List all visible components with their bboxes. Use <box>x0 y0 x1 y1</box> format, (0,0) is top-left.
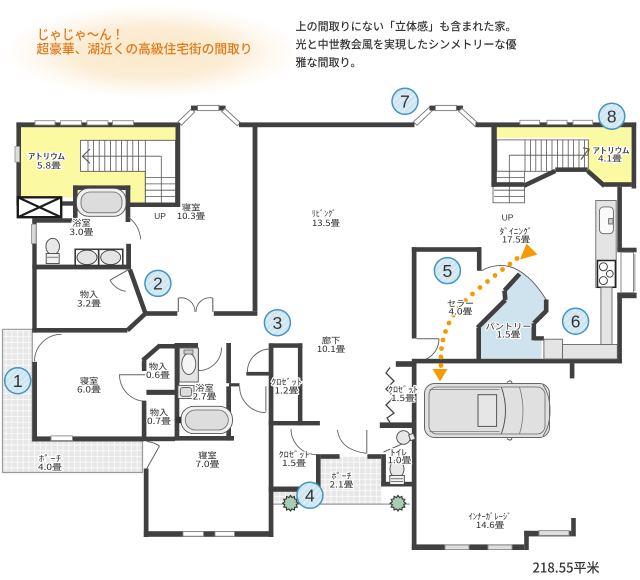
svg-text:2: 2 <box>153 274 163 294</box>
svg-text:UP: UP <box>154 211 166 221</box>
svg-text:4: 4 <box>305 486 315 506</box>
svg-text:3: 3 <box>273 313 283 333</box>
svg-text:6: 6 <box>571 311 581 331</box>
svg-text:1: 1 <box>13 371 23 391</box>
svg-text:5: 5 <box>443 261 453 281</box>
svg-text:UP: UP <box>502 213 514 223</box>
svg-text:8: 8 <box>607 106 617 126</box>
svg-text:7: 7 <box>400 92 410 112</box>
